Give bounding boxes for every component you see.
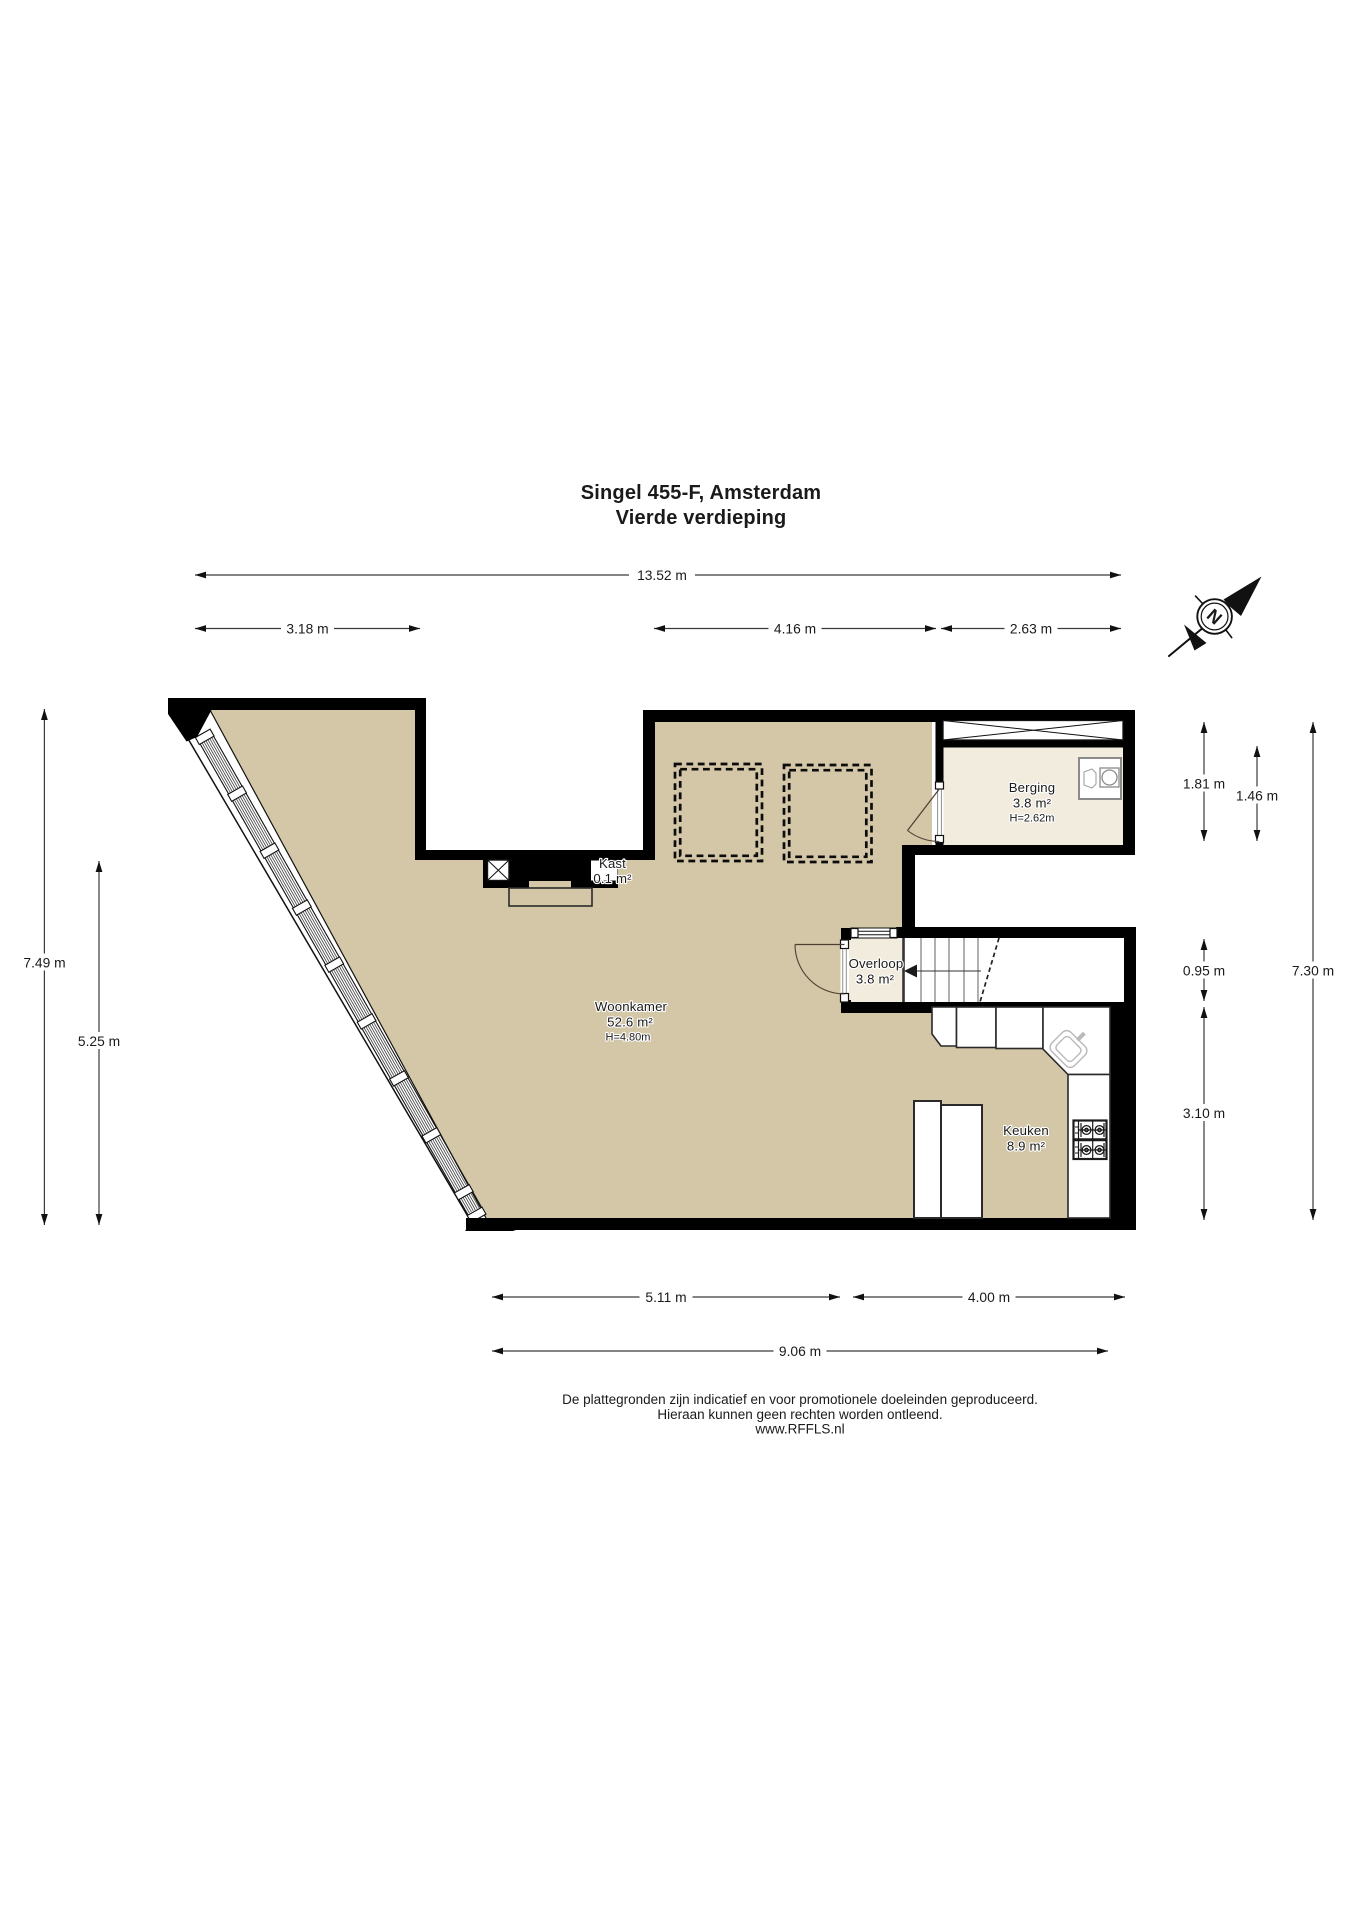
- svg-text:0.1 m²: 0.1 m²: [593, 871, 632, 886]
- svg-text:Singel 455-F, Amsterdam: Singel 455-F, Amsterdam: [581, 482, 822, 504]
- svg-text:Overloop: Overloop: [849, 956, 904, 971]
- svg-text:Kast: Kast: [599, 856, 626, 871]
- svg-text:1.46 m: 1.46 m: [1236, 789, 1278, 804]
- svg-text:13.52 m: 13.52 m: [637, 568, 687, 583]
- svg-text:7.30 m: 7.30 m: [1292, 964, 1334, 979]
- svg-text:2.63 m: 2.63 m: [1010, 622, 1052, 637]
- svg-text:52.6 m²: 52.6 m²: [607, 1015, 653, 1030]
- svg-text:Berging: Berging: [1009, 780, 1056, 795]
- svg-text:3.8 m²: 3.8 m²: [856, 972, 895, 987]
- svg-text:8.9 m²: 8.9 m²: [1007, 1139, 1046, 1154]
- svg-text:H=4.80m: H=4.80m: [606, 1032, 651, 1044]
- svg-text:H=2.62m: H=2.62m: [1010, 813, 1055, 825]
- svg-text:Hieraan kunnen geen rechten wo: Hieraan kunnen geen rechten worden ontle…: [657, 1407, 942, 1422]
- svg-text:De plattegronden zijn indicati: De plattegronden zijn indicatief en voor…: [562, 1392, 1038, 1407]
- svg-text:5.11 m: 5.11 m: [645, 1290, 686, 1305]
- svg-text:5.25 m: 5.25 m: [78, 1034, 120, 1049]
- svg-text:4.00 m: 4.00 m: [968, 1290, 1010, 1305]
- svg-text:3.8 m²: 3.8 m²: [1013, 796, 1052, 811]
- svg-text:4.16 m: 4.16 m: [774, 622, 816, 637]
- svg-text:www.RFFLS.nl: www.RFFLS.nl: [754, 1422, 844, 1437]
- svg-text:7.49 m: 7.49 m: [23, 956, 65, 971]
- svg-text:Vierde verdieping: Vierde verdieping: [616, 507, 787, 529]
- svg-text:1.81 m: 1.81 m: [1183, 777, 1225, 792]
- svg-text:Woonkamer: Woonkamer: [595, 999, 668, 1014]
- svg-text:3.10 m: 3.10 m: [1183, 1106, 1225, 1121]
- svg-text:3.18 m: 3.18 m: [286, 622, 328, 637]
- svg-text:9.06 m: 9.06 m: [779, 1344, 821, 1359]
- svg-text:Keuken: Keuken: [1003, 1123, 1049, 1138]
- svg-text:0.95 m: 0.95 m: [1183, 964, 1225, 979]
